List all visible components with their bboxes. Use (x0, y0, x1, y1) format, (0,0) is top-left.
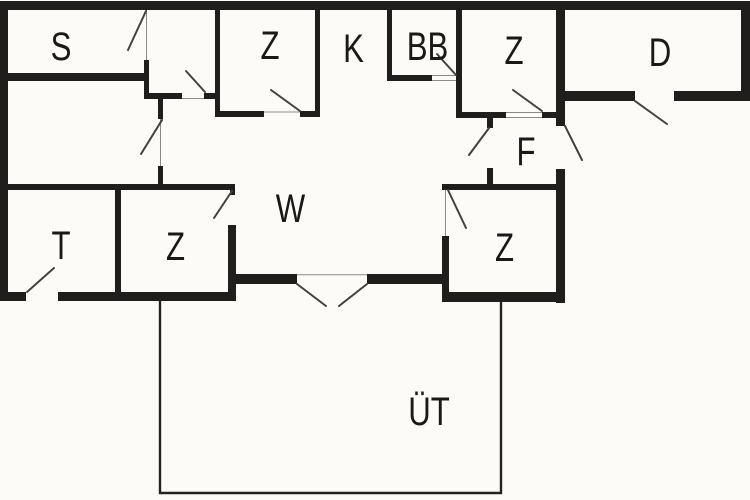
svg-text:S: S (51, 24, 72, 69)
svg-text:K: K (343, 26, 364, 71)
svg-text:W: W (276, 186, 306, 231)
svg-text:Z: Z (166, 224, 185, 269)
svg-text:D: D (649, 30, 672, 75)
svg-text:F: F (516, 129, 535, 174)
svg-text:Z: Z (504, 28, 523, 73)
svg-text:ÜT: ÜT (408, 389, 450, 434)
svg-text:T: T (51, 223, 70, 268)
svg-text:Z: Z (495, 225, 514, 270)
svg-text:BB: BB (407, 24, 449, 69)
svg-text:Z: Z (260, 23, 279, 68)
